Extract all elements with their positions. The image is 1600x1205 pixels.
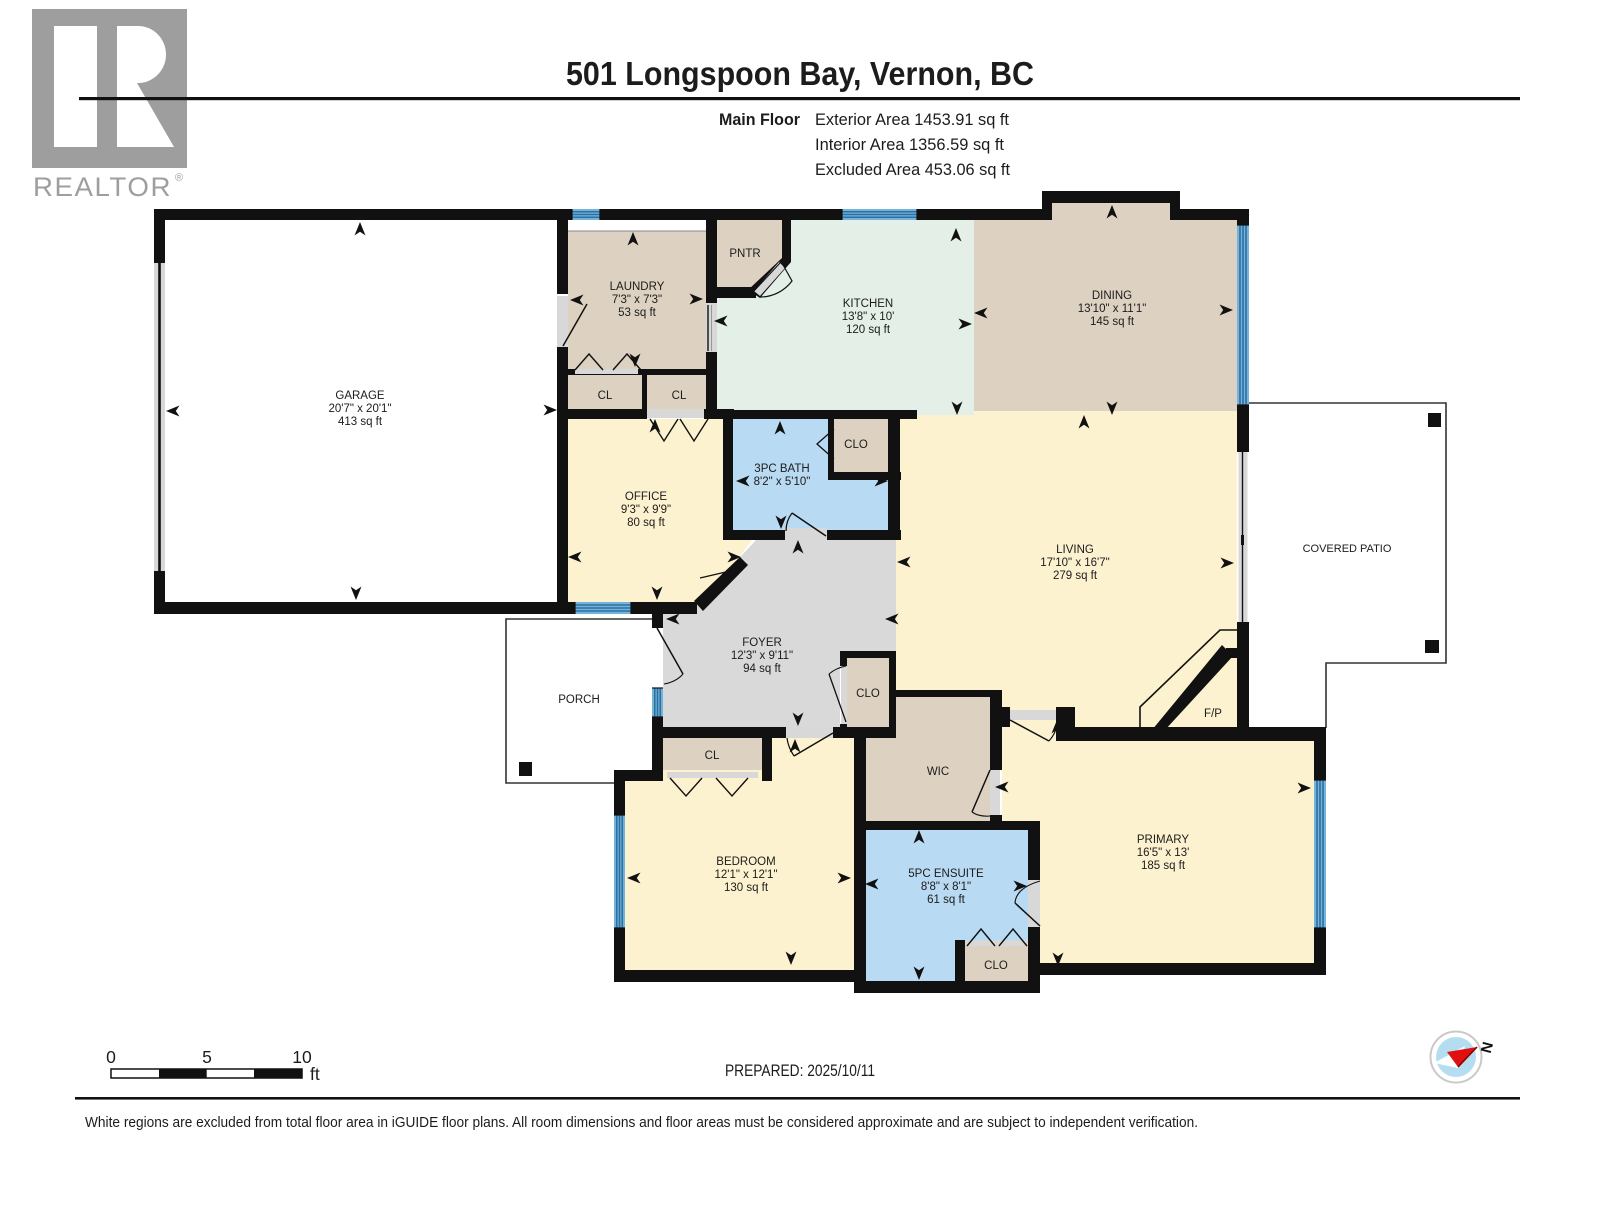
svg-text:KITCHEN: KITCHEN [843, 298, 893, 310]
svg-text:3PC BATH: 3PC BATH [754, 463, 809, 475]
svg-text:279 sq ft: 279 sq ft [1053, 570, 1098, 582]
svg-text:Main Floor: Main Floor [719, 110, 800, 129]
svg-text:13'8" x 10': 13'8" x 10' [842, 311, 895, 323]
svg-text:PREPARED: 2025/10/11: PREPARED: 2025/10/11 [725, 1062, 875, 1080]
svg-text:8'8" x 8'1": 8'8" x 8'1" [921, 881, 971, 893]
svg-text:White regions are excluded fro: White regions are excluded from total fl… [85, 1114, 1198, 1131]
svg-text:8'2" x 5'10": 8'2" x 5'10" [754, 476, 811, 488]
svg-text:LAUNDRY: LAUNDRY [610, 281, 665, 293]
svg-text:130 sq ft: 130 sq ft [724, 882, 769, 894]
svg-text:501 Longspoon Bay, Vernon, BC: 501 Longspoon Bay, Vernon, BC [566, 55, 1034, 92]
svg-text:61 sq ft: 61 sq ft [927, 894, 966, 906]
svg-text:CLO: CLO [856, 688, 880, 700]
svg-text:PORCH: PORCH [558, 694, 600, 706]
svg-text:5: 5 [202, 1047, 212, 1067]
svg-text:WIC: WIC [927, 766, 949, 778]
svg-text:CLO: CLO [984, 960, 1008, 972]
svg-text:120 sq ft: 120 sq ft [846, 324, 891, 336]
svg-text:185 sq ft: 185 sq ft [1141, 860, 1186, 872]
svg-text:®: ® [175, 172, 183, 184]
svg-text:OFFICE: OFFICE [625, 491, 667, 503]
svg-text:PNTR: PNTR [729, 248, 760, 260]
svg-text:ft: ft [310, 1064, 320, 1084]
svg-text:Exterior Area 1453.91 sq ft: Exterior Area 1453.91 sq ft [815, 110, 1009, 129]
svg-text:CLO: CLO [844, 439, 868, 451]
svg-text:CL: CL [705, 750, 720, 762]
svg-text:REALTOR: REALTOR [33, 172, 172, 202]
svg-text:80 sq ft: 80 sq ft [627, 517, 666, 529]
svg-text:16'5" x 13': 16'5" x 13' [1137, 847, 1190, 859]
svg-text:0: 0 [106, 1047, 116, 1067]
svg-text:Excluded Area 453.06 sq ft: Excluded Area 453.06 sq ft [815, 160, 1010, 179]
svg-text:LIVING: LIVING [1056, 544, 1094, 556]
svg-text:DINING: DINING [1092, 290, 1132, 302]
svg-text:94 sq ft: 94 sq ft [743, 663, 782, 675]
svg-text:CL: CL [598, 390, 613, 402]
svg-text:12'1" x 12'1": 12'1" x 12'1" [714, 869, 777, 881]
svg-text:CL: CL [672, 390, 687, 402]
svg-text:145 sq ft: 145 sq ft [1090, 316, 1135, 328]
svg-text:20'7" x 20'1": 20'7" x 20'1" [328, 403, 391, 415]
svg-text:413 sq ft: 413 sq ft [338, 416, 383, 428]
svg-text:12'3" x 9'11": 12'3" x 9'11" [731, 650, 793, 662]
svg-text:13'10" x 11'1": 13'10" x 11'1" [1078, 303, 1147, 315]
svg-text:7'3" x 7'3": 7'3" x 7'3" [612, 294, 662, 306]
svg-text:COVERED PATIO: COVERED PATIO [1303, 543, 1392, 555]
svg-text:Interior Area 1356.59 sq ft: Interior Area 1356.59 sq ft [815, 135, 1004, 154]
svg-text:53 sq ft: 53 sq ft [618, 307, 657, 319]
svg-text:5PC ENSUITE: 5PC ENSUITE [908, 868, 984, 880]
svg-text:FOYER: FOYER [742, 637, 782, 649]
svg-text:F/P: F/P [1204, 708, 1222, 720]
svg-text:17'10" x 16'7": 17'10" x 16'7" [1040, 557, 1109, 569]
svg-text:PRIMARY: PRIMARY [1137, 834, 1190, 846]
svg-text:GARAGE: GARAGE [335, 390, 385, 402]
svg-text:BEDROOM: BEDROOM [716, 856, 775, 868]
svg-text:9'3" x 9'9": 9'3" x 9'9" [621, 504, 671, 516]
